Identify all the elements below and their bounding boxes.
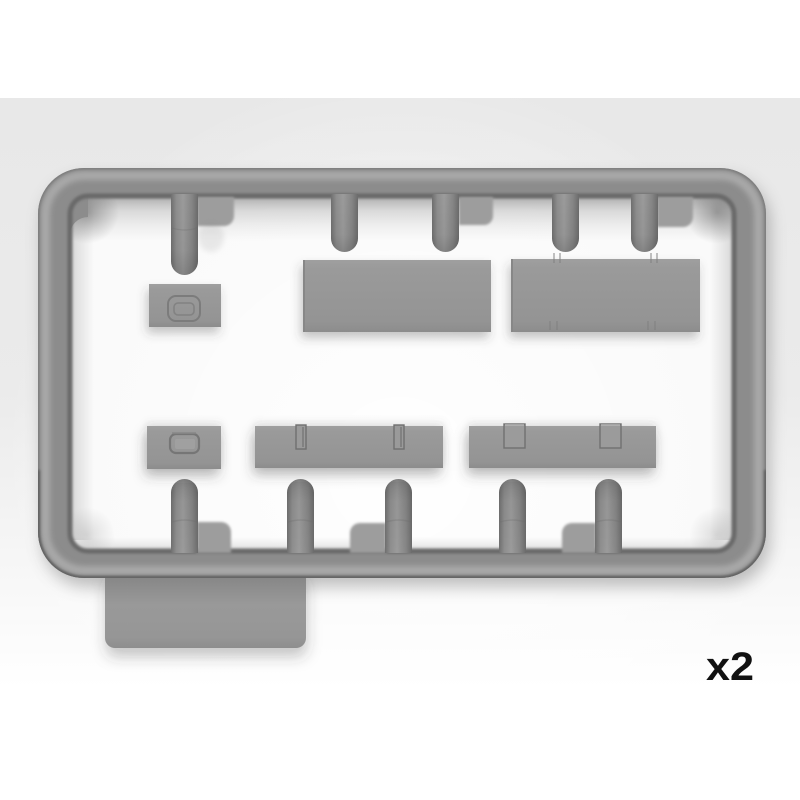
svg-text:x2: x2: [706, 645, 754, 689]
